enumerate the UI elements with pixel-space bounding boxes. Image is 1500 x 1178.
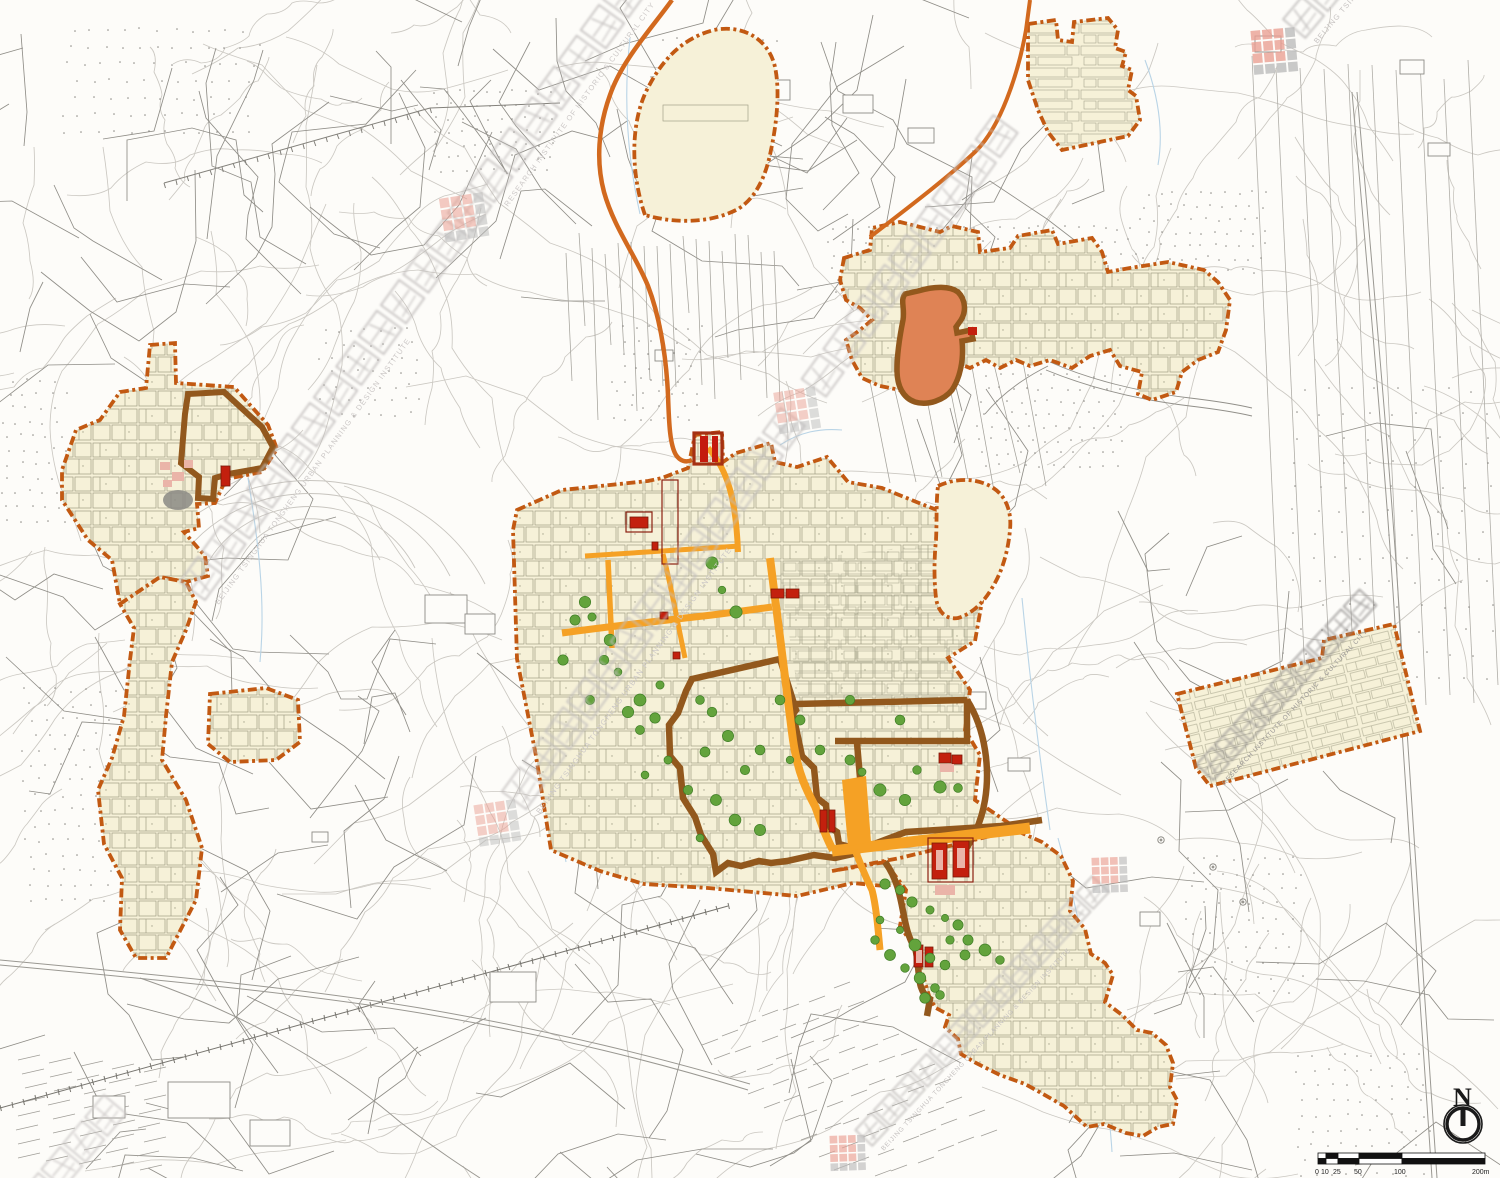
svg-text:50: 50 <box>1354 1169 1362 1176</box>
svg-text:25: 25 <box>1333 1169 1341 1176</box>
svg-text:200m: 200m <box>1472 1169 1490 1176</box>
svg-text:0: 0 <box>1315 1169 1319 1176</box>
svg-text:10: 10 <box>1321 1169 1329 1176</box>
svg-text:100: 100 <box>1394 1169 1406 1176</box>
